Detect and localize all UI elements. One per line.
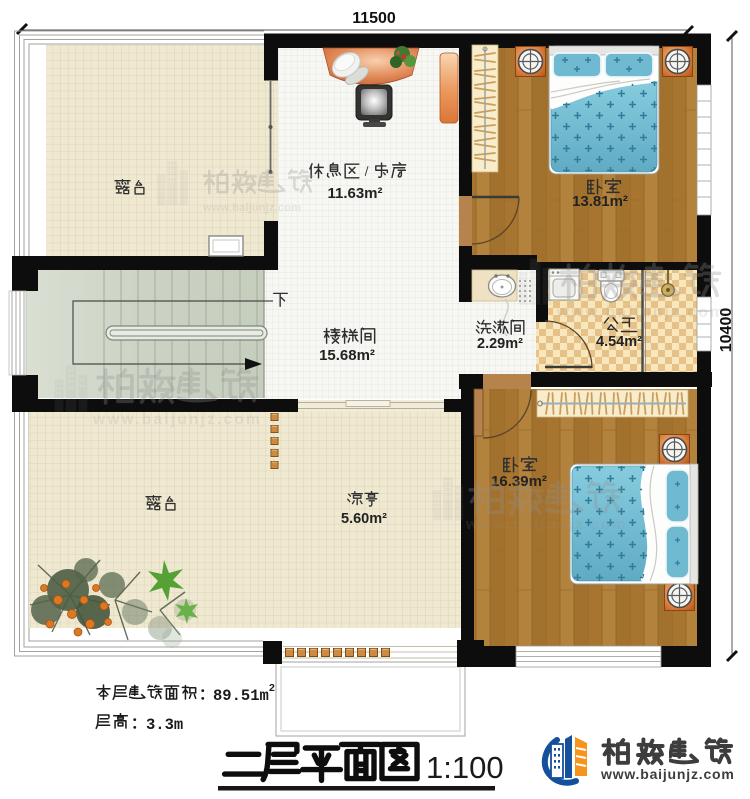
svg-text:www.baijunjz.com: www.baijunjz.com [92,411,262,428]
svg-text:3.3m: 3.3m [146,716,183,734]
svg-text:www.baijunjz.com: www.baijunjz.com [556,304,726,321]
svg-text:89.51m: 89.51m [213,687,269,705]
svg-text:www.baijunjz.com: www.baijunjz.com [202,202,301,214]
svg-text:15.68m²: 15.68m² [319,347,375,364]
svg-text:4.54m²: 4.54m² [596,334,642,350]
svg-text:www.baijunjz.com: www.baijunjz.com [600,766,735,782]
svg-text:11.63m²: 11.63m² [327,185,382,202]
svg-text:5.60m²: 5.60m² [341,511,387,527]
svg-text:11500: 11500 [352,10,396,27]
svg-text:：: ： [131,715,146,732]
svg-text:www.baijunjz.com: www.baijunjz.com [465,516,627,533]
svg-text:2.29m²: 2.29m² [477,336,523,352]
svg-text:2: 2 [269,682,275,694]
svg-text:1:100: 1:100 [426,750,504,785]
svg-text:：: ： [199,686,214,703]
svg-text:13.81m²: 13.81m² [572,193,628,210]
